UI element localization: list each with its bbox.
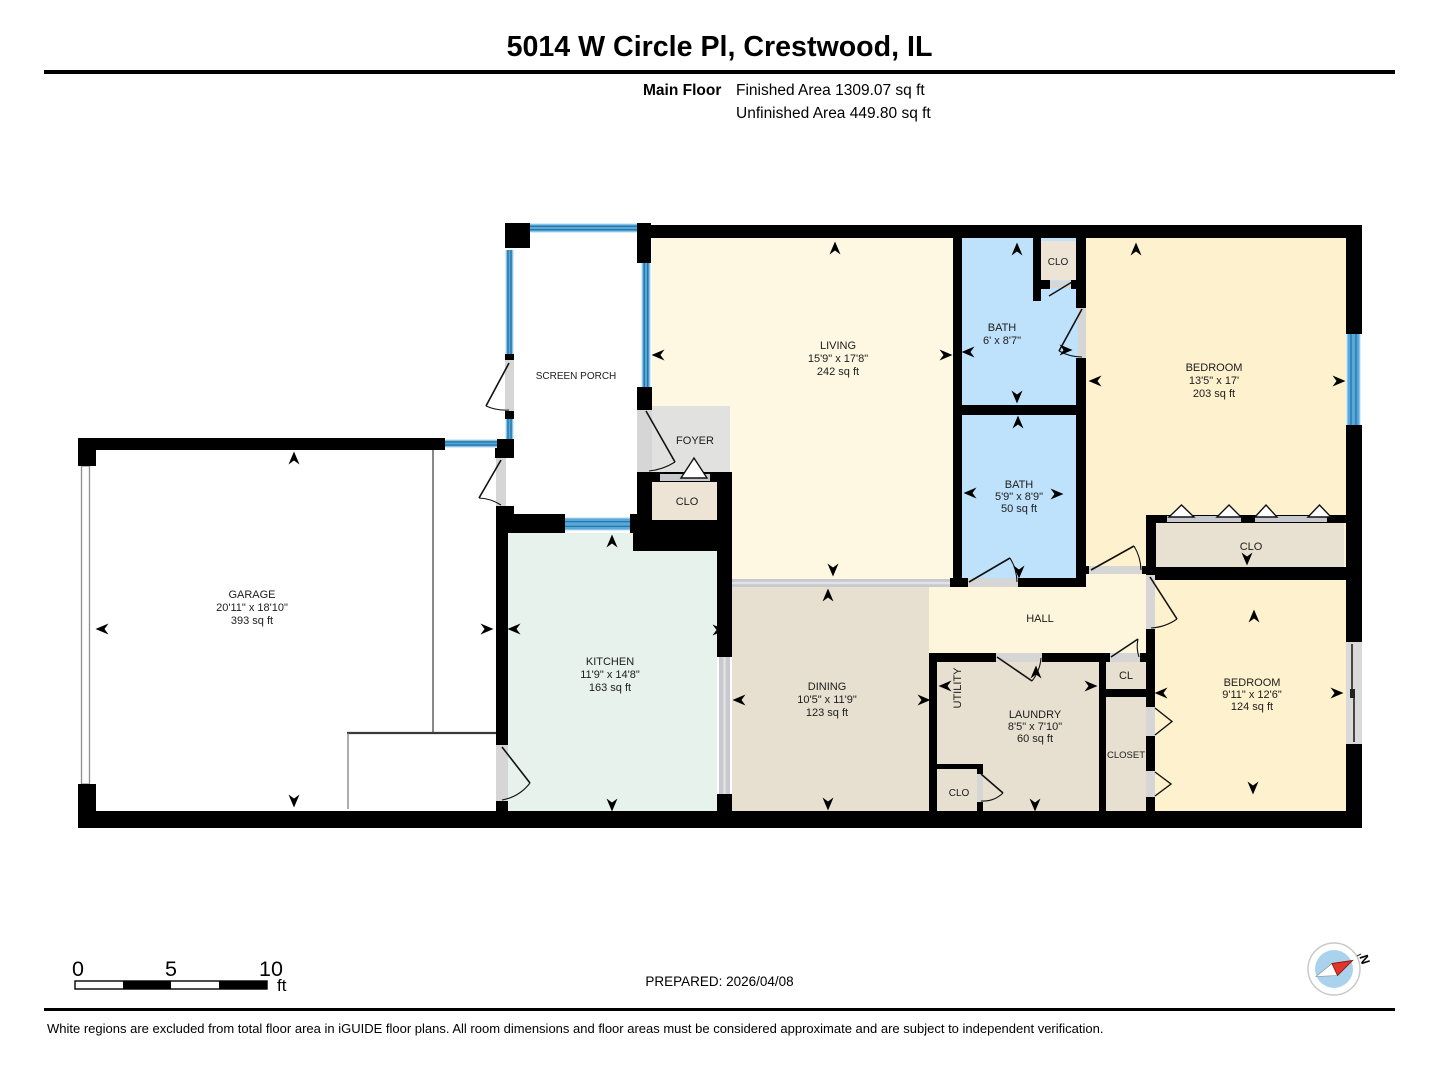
svg-text:9'11" x 12'6": 9'11" x 12'6" xyxy=(1222,689,1282,701)
svg-text:242 sq ft: 242 sq ft xyxy=(817,366,859,378)
svg-text:11'9" x 14'8": 11'9" x 14'8" xyxy=(580,669,640,681)
svg-text:123 sq ft: 123 sq ft xyxy=(806,707,848,719)
svg-text:CLO: CLO xyxy=(676,496,699,508)
svg-text:6' x 8'7": 6' x 8'7" xyxy=(983,335,1021,347)
svg-text:BATH: BATH xyxy=(988,322,1017,334)
svg-text:HALL: HALL xyxy=(1026,613,1054,625)
svg-text:GARAGE: GARAGE xyxy=(228,589,275,601)
svg-text:CLO: CLO xyxy=(1048,257,1069,268)
svg-text:CLOSET: CLOSET xyxy=(1107,750,1145,761)
svg-text:393 sq ft: 393 sq ft xyxy=(231,615,273,627)
svg-text:CLO: CLO xyxy=(1240,541,1263,553)
svg-text:CL: CL xyxy=(1119,670,1133,682)
svg-text:LAUNDRY: LAUNDRY xyxy=(1009,709,1062,721)
svg-text:10'5" x 11'9": 10'5" x 11'9" xyxy=(797,694,857,706)
svg-text:124 sq ft: 124 sq ft xyxy=(1231,701,1273,713)
svg-text:13'5" x 17': 13'5" x 17' xyxy=(1189,375,1239,387)
svg-text:SCREEN PORCH: SCREEN PORCH xyxy=(536,371,617,382)
svg-text:163 sq ft: 163 sq ft xyxy=(589,682,631,694)
svg-text:15'9" x 17'8": 15'9" x 17'8" xyxy=(808,353,868,365)
svg-text:50 sq ft: 50 sq ft xyxy=(1001,503,1037,515)
svg-text:5'9" x 8'9": 5'9" x 8'9" xyxy=(995,491,1043,503)
svg-text:20'11" x 18'10": 20'11" x 18'10" xyxy=(216,602,288,614)
svg-text:BEDROOM: BEDROOM xyxy=(1186,362,1243,374)
svg-text:UTILITY: UTILITY xyxy=(952,667,964,709)
svg-text:203 sq ft: 203 sq ft xyxy=(1193,388,1235,400)
svg-text:DINING: DINING xyxy=(808,681,847,693)
svg-text:CLO: CLO xyxy=(949,788,970,799)
svg-text:BEDROOM: BEDROOM xyxy=(1224,677,1281,689)
svg-text:8'5" x 7'10": 8'5" x 7'10" xyxy=(1008,721,1062,733)
svg-text:LIVING: LIVING xyxy=(820,340,856,352)
svg-text:KITCHEN: KITCHEN xyxy=(586,656,634,668)
svg-text:FOYER: FOYER xyxy=(676,435,714,447)
svg-text:60 sq ft: 60 sq ft xyxy=(1017,733,1053,745)
svg-text:BATH: BATH xyxy=(1005,479,1034,491)
